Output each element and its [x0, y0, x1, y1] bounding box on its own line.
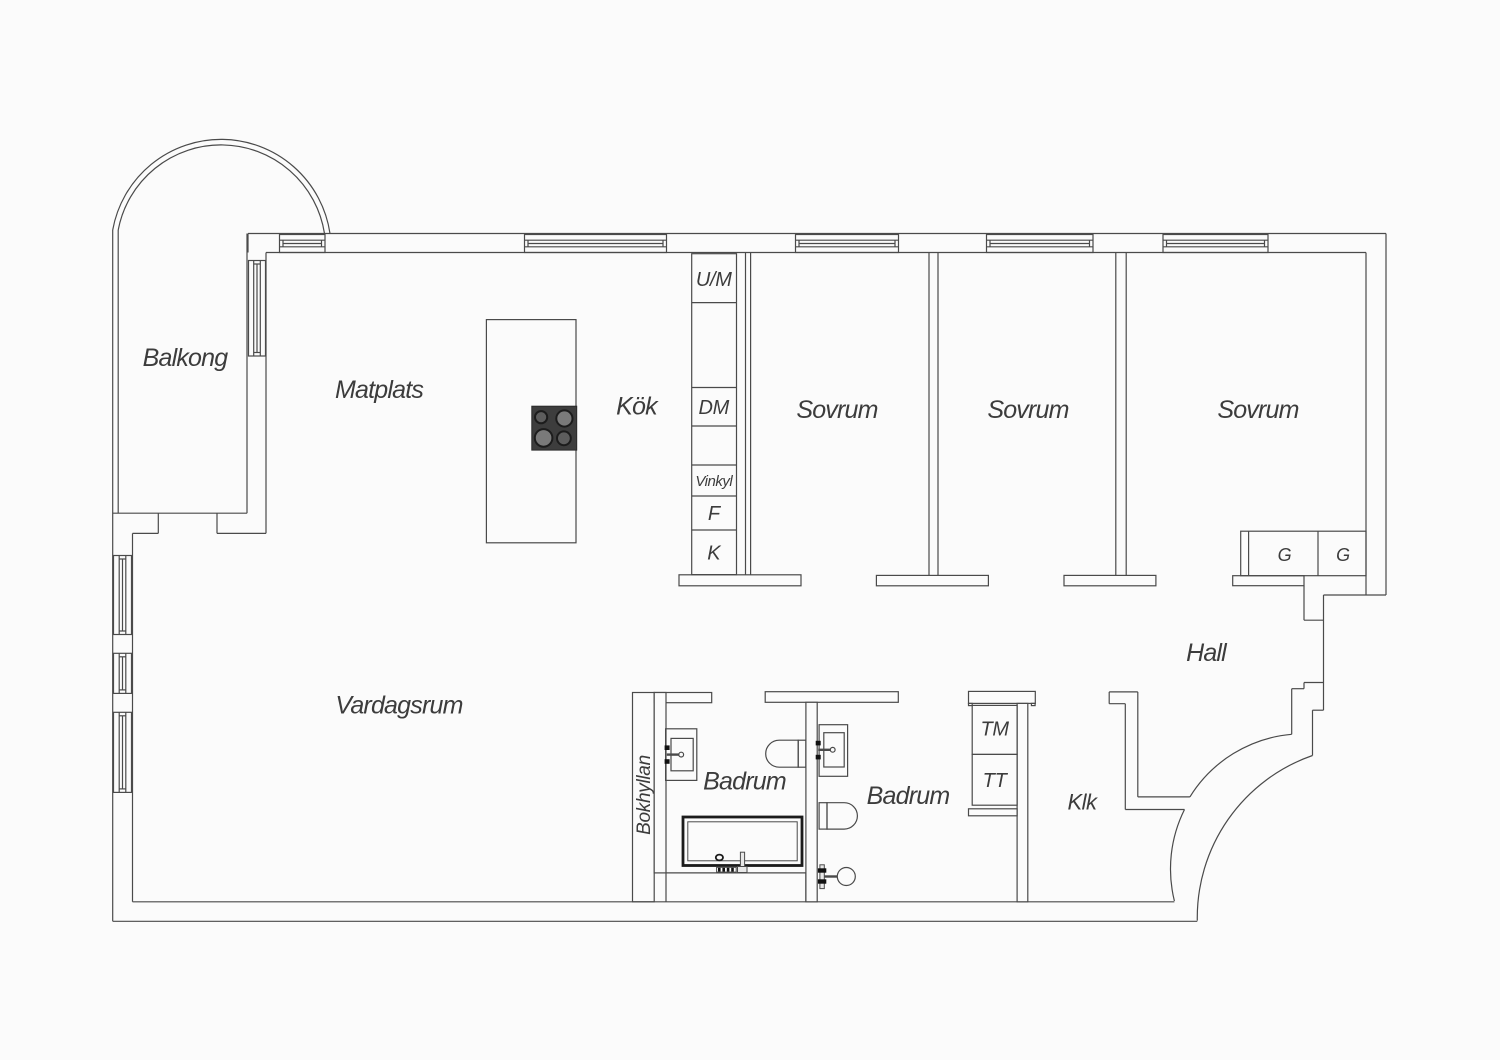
svg-text:Hall: Hall	[1186, 639, 1228, 667]
svg-text:Matplats: Matplats	[335, 376, 423, 404]
svg-text:Balkong: Balkong	[143, 344, 229, 372]
svg-text:Vinkyl: Vinkyl	[695, 473, 733, 490]
svg-text:Vardagsrum: Vardagsrum	[335, 691, 462, 719]
svg-text:Badrum: Badrum	[867, 782, 950, 810]
svg-text:G: G	[1278, 545, 1292, 565]
svg-text:DM: DM	[699, 397, 730, 419]
svg-text:Klk: Klk	[1067, 790, 1098, 815]
svg-text:Bokhyllan: Bokhyllan	[634, 755, 655, 835]
svg-text:Sovrum: Sovrum	[796, 396, 877, 424]
svg-text:U/M: U/M	[696, 269, 732, 291]
svg-text:F: F	[708, 503, 722, 525]
svg-text:Sovrum: Sovrum	[1217, 396, 1298, 424]
svg-text:G: G	[1336, 545, 1350, 565]
svg-text:TM: TM	[980, 719, 1009, 741]
svg-text:Badrum: Badrum	[703, 767, 786, 795]
svg-text:Kök: Kök	[616, 392, 659, 420]
svg-text:K: K	[707, 543, 722, 565]
svg-text:TT: TT	[983, 770, 1009, 792]
svg-text:Sovrum: Sovrum	[987, 396, 1068, 424]
